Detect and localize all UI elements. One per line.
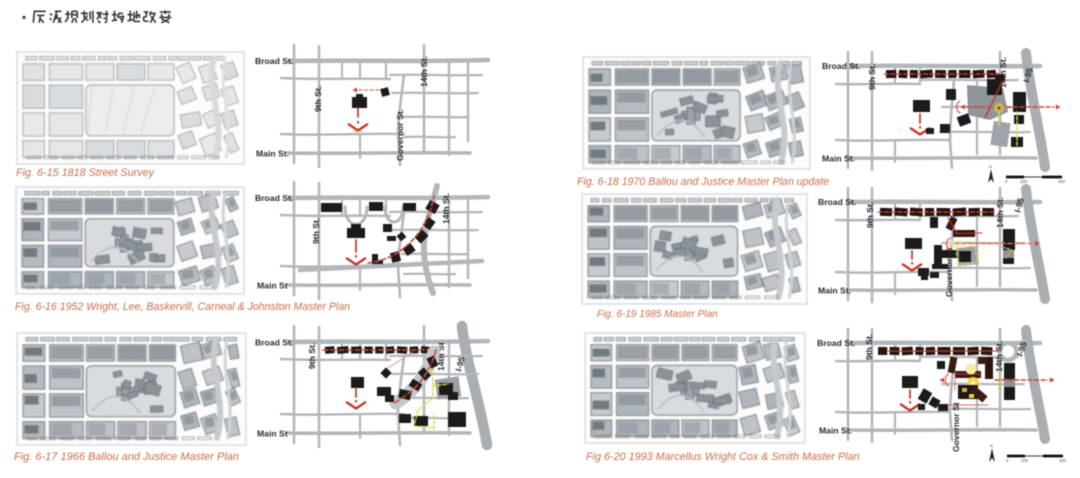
svg-text:400: 400	[1059, 458, 1067, 463]
svg-text:Broad St.: Broad St.	[817, 338, 855, 348]
svg-text:Fig. 6-15 1818 Street Survey: Fig. 6-15 1818 Street Survey	[16, 167, 155, 179]
svg-text:Broad St.: Broad St.	[255, 193, 293, 203]
svg-text:9th St.: 9th St.	[865, 202, 875, 228]
svg-text:Main St.: Main St.	[819, 426, 852, 436]
svg-text:Main St.: Main St.	[818, 286, 851, 296]
svg-text:9th St.: 9th St.	[307, 343, 317, 369]
svg-text:9th St.: 9th St.	[867, 64, 877, 90]
svg-text:400: 400	[1058, 179, 1066, 184]
svg-text:I-95: I-95	[1012, 196, 1026, 213]
svg-text:9th St.: 9th St.	[313, 86, 323, 112]
svg-text:14th St.: 14th St.	[994, 341, 1004, 372]
svg-text:0: 0	[1006, 458, 1009, 463]
svg-text:N: N	[990, 443, 993, 448]
svg-text:14th St.: 14th St.	[419, 56, 429, 87]
svg-text:14th St.: 14th St.	[441, 193, 451, 224]
svg-text:Fig. 6-19 1985 Master Plan: Fig. 6-19 1985 Master Plan	[597, 309, 718, 320]
svg-text:Governor St: Governor St	[951, 402, 961, 452]
svg-text:Main St.: Main St.	[256, 149, 289, 159]
svg-text:Fig 6-20 1993 Marcellus Wright: Fig 6-20 1993 Marcellus Wright Cox & Smi…	[586, 451, 860, 463]
svg-text:N: N	[989, 164, 992, 169]
svg-text:Main St.: Main St.	[822, 154, 855, 164]
svg-text:Broad St.: Broad St.	[255, 338, 293, 348]
svg-text:9th St.: 9th St.	[311, 218, 321, 244]
svg-text:Fig. 6-16 1952 Wright, Lee, Ba: Fig. 6-16 1952 Wright, Lee, Baskervill, …	[15, 301, 350, 313]
svg-text:9th St.: 9th St.	[864, 334, 874, 360]
svg-text:Fig. 6-17 1966 Ballou and Just: Fig. 6-17 1966 Ballou and Justice Master…	[14, 451, 239, 463]
svg-text:200: 200	[1020, 458, 1029, 463]
svg-text:0: 0	[1005, 179, 1008, 184]
svg-text:200: 200	[1019, 179, 1028, 184]
svg-text:Broad St.: Broad St.	[818, 197, 856, 207]
svg-text:Broad St.: Broad St.	[822, 61, 860, 71]
svg-text:Fig. 6-18 1970 Ballou and Just: Fig. 6-18 1970 Ballou and Justice Master…	[577, 176, 829, 188]
svg-text:Broad St.: Broad St.	[255, 56, 293, 66]
svg-text:14th St.: 14th St.	[995, 197, 1005, 228]
svg-text:Main St: Main St	[257, 281, 288, 291]
svg-text:Governor St.: Governor St.	[395, 109, 405, 161]
svg-text:I-95: I-95	[453, 355, 467, 372]
svg-text:Main St: Main St	[257, 429, 288, 439]
